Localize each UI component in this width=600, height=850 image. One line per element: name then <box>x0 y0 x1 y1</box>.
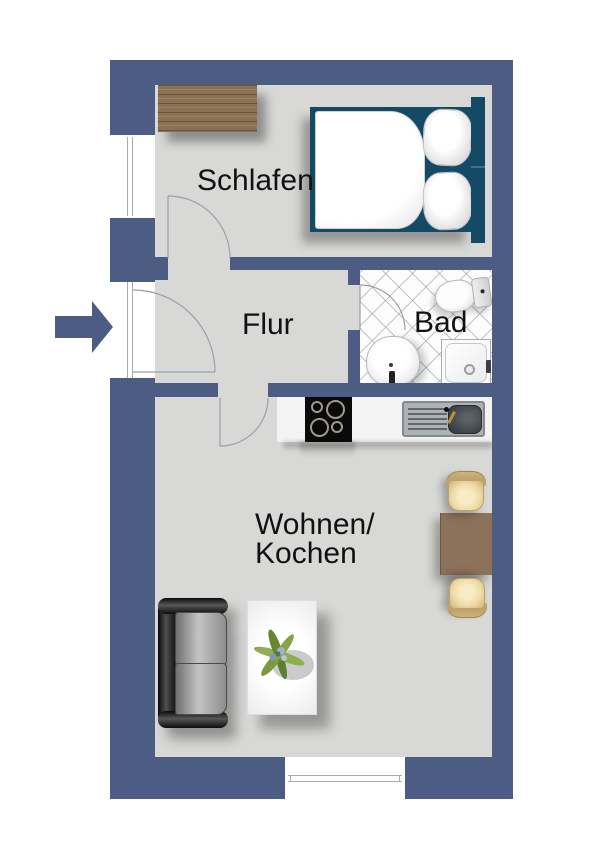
bed-duvet <box>315 111 425 229</box>
burner-large-bl <box>310 418 329 437</box>
door-frame-line <box>132 282 133 378</box>
room-label-line1: Wohnen/ <box>255 510 375 539</box>
shower-inner <box>445 343 487 383</box>
room-label-schlafen: Schlafen <box>197 164 314 198</box>
burner-large-tr <box>326 400 345 419</box>
bed-pillow-top <box>422 108 473 167</box>
wall-bath-left-upper <box>348 270 360 285</box>
wall-left-upper <box>110 60 155 135</box>
bed-headboard <box>471 97 485 243</box>
window-pane-tick <box>290 775 291 782</box>
dining-chair-top <box>446 471 486 512</box>
wall-bath-left-lower <box>348 330 360 390</box>
window-pane-line <box>127 137 128 216</box>
window-pane-line <box>132 137 133 216</box>
chair-seat <box>448 480 484 511</box>
dining-table <box>440 513 493 575</box>
burner-small-tl <box>311 401 323 413</box>
room-label-bad: Bad <box>414 306 467 340</box>
shower-tray <box>441 339 491 387</box>
window-bedroom <box>110 135 155 218</box>
sofa-cushion-top <box>175 612 227 665</box>
room-label-wohnen-kochen: Wohnen/ Kochen <box>255 510 375 568</box>
sofa-cushion-bottom <box>175 663 227 715</box>
wardrobe <box>158 85 257 132</box>
kitchen-sink <box>402 401 485 437</box>
wall-top <box>110 60 513 85</box>
wall-bottom-right <box>405 757 513 799</box>
oven-shadow <box>300 442 355 457</box>
washbasin-drain <box>389 363 393 367</box>
wall-stub-bedroom <box>155 257 168 280</box>
wall-left-lower <box>110 378 155 757</box>
bed-headboard-mark <box>471 166 485 168</box>
bed-pillow-bottom <box>422 171 473 231</box>
window-living <box>285 757 405 799</box>
entry-door-opening <box>110 282 155 378</box>
wall-left-middle <box>110 218 155 282</box>
floor-plan: Schlafen Flur Bad Wohnen/ Kochen <box>0 0 600 850</box>
sink-faucet-base <box>444 407 449 412</box>
wall-right <box>492 60 513 799</box>
shower-tap <box>486 360 491 373</box>
wall-bottom-left <box>110 757 285 799</box>
door-frame-line <box>127 282 128 378</box>
dining-chair-bottom <box>447 577 487 618</box>
entry-arrow-shaft <box>55 316 95 338</box>
room-label-line2: Kochen <box>255 539 375 568</box>
sink-basin <box>448 405 482 434</box>
window-pane-line <box>288 775 402 776</box>
wall-divider-hall-right <box>268 383 492 397</box>
cooktop <box>305 395 352 442</box>
sink-drainboard <box>408 408 447 433</box>
wall-divider-bedroom <box>230 257 492 270</box>
burner-small-br <box>331 421 343 433</box>
chair-seat <box>449 578 485 609</box>
sofa <box>158 598 228 728</box>
room-label-flur: Flur <box>242 308 294 342</box>
window-pane-tick <box>399 775 400 782</box>
entry-arrow-head <box>92 301 113 353</box>
window-pane-line <box>288 781 402 782</box>
shower-drain <box>464 364 475 375</box>
wall-divider-hall-left <box>155 383 218 397</box>
double-bed <box>310 107 473 232</box>
potted-plant <box>239 613 323 697</box>
